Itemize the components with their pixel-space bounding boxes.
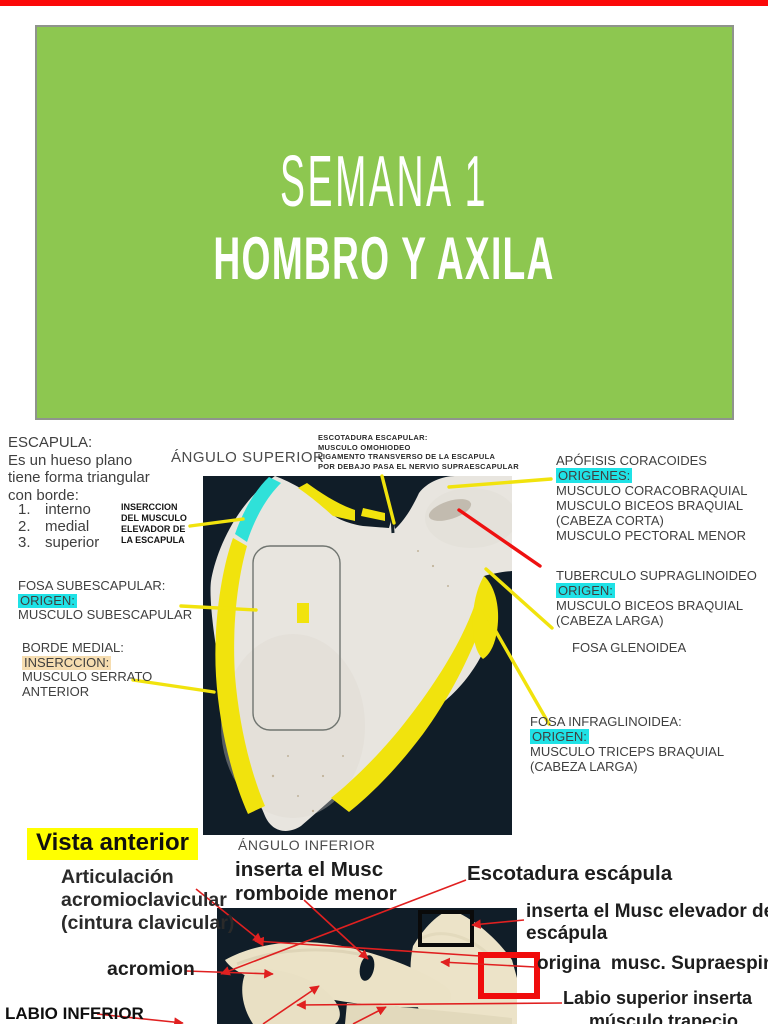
- origenes-highlight: ORIGENES:: [556, 468, 632, 483]
- label-line: MUSCULO BICEOS BRAQUIAL: [556, 598, 757, 613]
- label-line: (cintura clavicular): [61, 912, 234, 935]
- label-line: INSERCCION: [121, 502, 187, 513]
- origina-supraespinoso-label: origina musc. Supraespinoso: [537, 953, 768, 975]
- label-line: MUSCULO CORACOBRAQUIAL: [556, 483, 747, 498]
- label-line: MUSCULO PECTORAL MENOR: [556, 528, 747, 543]
- caption-line: LIGAMENTO TRANSVERSO DE LA ESCAPULA: [318, 452, 519, 462]
- scapula-anterior-photo: [203, 476, 512, 835]
- label-title: TUBERCULO SUPRAGLINOIDEO: [556, 568, 757, 583]
- title-slide: [35, 25, 734, 420]
- label-line: acromioclavicular: [61, 889, 234, 912]
- list-item: 1. interno: [18, 502, 99, 519]
- vista-anterior-title: Vista anterior: [27, 828, 198, 860]
- list-item-label: interno: [45, 502, 91, 519]
- list-item-label: superior: [45, 535, 99, 552]
- scapular-notch: [392, 517, 393, 533]
- label-line: (CABEZA LARGA): [556, 613, 757, 628]
- caption-line: ESCOTADURA ESCAPULAR:: [318, 433, 519, 443]
- caption-line: POR DEBAJO PASA EL NERVIO SUPRAESCAPULAR: [318, 462, 519, 472]
- list-item-number: 3.: [18, 535, 45, 552]
- label-line: ANTERIOR: [22, 685, 152, 700]
- tuberculo-block: TUBERCULO SUPRAGLINOIDEO ORIGEN: MUSCULO…: [556, 568, 757, 628]
- label-title: FOSA SUBESCAPULAR:: [18, 579, 192, 594]
- escotadura-caption-block: ESCOTADURA ESCAPULAR: MUSCULO OMOHIODEO …: [318, 433, 519, 471]
- inserccion-highlight: INSERCCION:: [22, 656, 111, 671]
- list-item: 3. superior: [18, 535, 99, 552]
- fosa-infraglinoidea-block: FOSA INFRAGLINOIDEA: ORIGEN: MUSCULO TRI…: [530, 714, 724, 774]
- label-line: inserta el Musc elevador de la: [526, 901, 768, 923]
- label-line: MUSCULO BICEOS BRAQUIAL: [556, 498, 747, 513]
- label-title: BORDE MEDIAL:: [22, 641, 152, 656]
- red-outline-box: [478, 952, 540, 999]
- origen-highlight: ORIGEN:: [556, 583, 615, 598]
- acromion-label: acromion: [107, 958, 195, 981]
- origen-highlight: ORIGEN:: [18, 594, 77, 609]
- label-line: Articulación: [61, 866, 234, 889]
- caption-line: MUSCULO OMOHIODEO: [318, 443, 519, 453]
- label-line: MUSCULO SUBESCAPULAR: [18, 608, 192, 623]
- fosa-subescapular-block: FOSA SUBESCAPULAR: ORIGEN: MUSCULO SUBES…: [18, 579, 192, 623]
- labio-inferior-label: LABIO INFERIOR: [5, 1004, 144, 1024]
- label-line: MUSCULO SERRATO: [22, 670, 152, 685]
- label-line: escápula: [526, 923, 768, 945]
- slide-title-line1: SEMANA 1: [184, 146, 583, 218]
- list-item-number: 2.: [18, 519, 45, 536]
- escotadura-escapula-label: Escotadura escápula: [467, 862, 672, 886]
- inserccion-elevador-label: INSERCCION DEL MUSCULO ELEVADOR DE LA ES…: [121, 502, 187, 546]
- document-page: SEMANA 1 HOMBRO Y AXILA: [0, 0, 768, 1024]
- label-line: (CABEZA LARGA): [530, 759, 724, 774]
- label-title: FOSA INFRAGLINOIDEA:: [530, 714, 724, 729]
- inserta-romboide-block: inserta el Musc romboide menor: [235, 858, 397, 905]
- origen-highlight: ORIGEN:: [530, 729, 589, 744]
- labio-superior-line2: músculo trapecio: [589, 1011, 738, 1024]
- borde-medial-block: BORDE MEDIAL: INSERCCION: MUSCULO SERRAT…: [22, 641, 152, 699]
- intro-line: tiene forma triangular: [8, 469, 150, 487]
- label-line: inserta el Musc: [235, 858, 397, 882]
- escapula-intro-block: ESCAPULA: Es un hueso plano tiene forma …: [8, 434, 150, 504]
- border-list: 1. interno 2. medial 3. superior: [18, 502, 99, 552]
- slide-title-line2: HOMBRO Y AXILA: [146, 229, 622, 289]
- intro-title: ESCAPULA:: [8, 434, 150, 452]
- label-line: DEL MUSCULO: [121, 513, 187, 524]
- fosa-glenoidea-label: FOSA GLENOIDEA: [572, 640, 686, 655]
- label-title: APÓFISIS CORACOIDES: [556, 453, 747, 468]
- list-item-number: 1.: [18, 502, 45, 519]
- labio-superior-line1: Labio superior inserta: [563, 988, 752, 1009]
- inserta-elevador-block: inserta el Musc elevador de la escápula: [526, 901, 768, 944]
- label-line: ELEVADOR DE: [121, 524, 187, 535]
- list-item-label: medial: [45, 519, 89, 536]
- black-outline-box: [418, 910, 474, 947]
- list-item: 2. medial: [18, 519, 99, 536]
- label-line: (CABEZA CORTA): [556, 513, 747, 528]
- coracoides-block: APÓFISIS CORACOIDES ORIGENES: MUSCULO CO…: [556, 453, 747, 543]
- label-line: romboide menor: [235, 882, 397, 906]
- angulo-superior-heading: ÁNGULO SUPERIOR: [171, 449, 324, 466]
- intro-line: Es un hueso plano: [8, 452, 150, 470]
- yellow-marker-rect: [297, 603, 309, 623]
- label-line: MUSCULO TRICEPS BRAQUIAL: [530, 744, 724, 759]
- angulo-inferior-heading: ÁNGULO INFERIOR: [238, 837, 375, 853]
- top-red-bar: [0, 0, 768, 6]
- articulacion-block: Articulación acromioclavicular (cintura …: [61, 866, 234, 935]
- label-line: LA ESCAPULA: [121, 535, 187, 546]
